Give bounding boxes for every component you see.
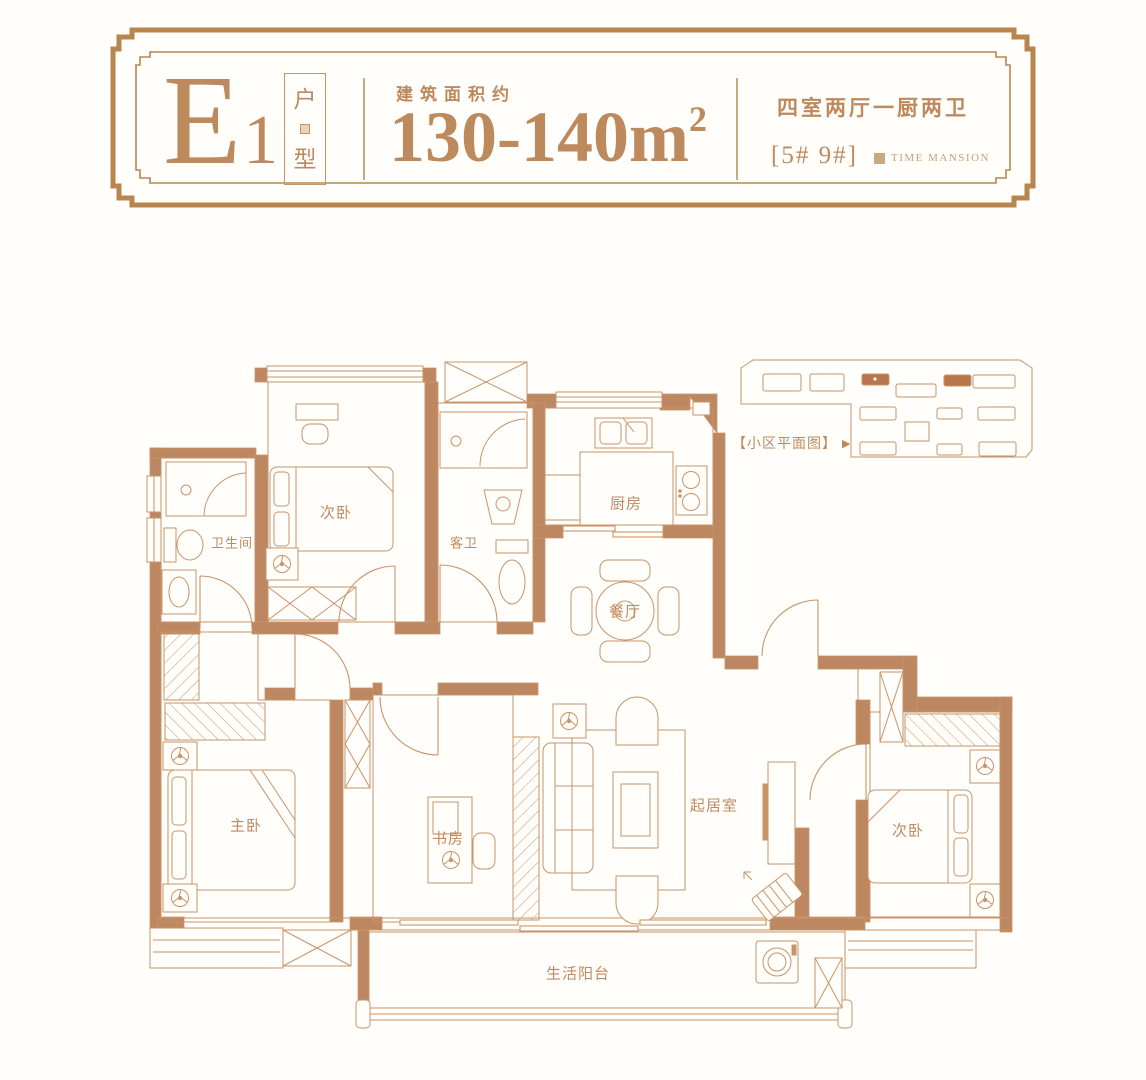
kitchen-sink bbox=[595, 418, 652, 448]
dressing-desk bbox=[296, 404, 338, 444]
room-label-bedroom-2: 次卧 bbox=[320, 502, 352, 523]
entry-bench bbox=[744, 872, 803, 922]
toilet bbox=[496, 540, 528, 604]
room-label-dining: 餐厅 bbox=[609, 601, 641, 622]
brand: TIME MANSION bbox=[874, 152, 990, 164]
building-numbers: [5# 9#] bbox=[771, 142, 858, 170]
floorplan-page: E 1 户 型 建筑面积约 130-140m2 四室两厅一厨两卫 [5# 9#]… bbox=[0, 0, 1146, 1080]
room-label-living: 起居室 bbox=[690, 795, 738, 816]
unit-code-letter: E bbox=[163, 56, 241, 184]
shower bbox=[166, 462, 246, 516]
brand-logo-icon bbox=[874, 153, 885, 164]
room-label-study: 书房 bbox=[432, 828, 464, 849]
kitchen-island bbox=[580, 452, 673, 525]
washing-machine bbox=[756, 941, 798, 983]
pedestal-sink bbox=[484, 490, 522, 524]
rooms-description: 四室两厅一厨两卫 bbox=[777, 92, 969, 122]
area-unit-superscript: 2 bbox=[689, 99, 707, 139]
area-value-number: 130-140m bbox=[389, 97, 689, 177]
unit-type-box: 户 型 bbox=[284, 73, 326, 185]
sink bbox=[162, 570, 196, 614]
room-label-kitchen: 厨房 bbox=[610, 493, 642, 514]
siteplan-caption: 【小区平面图】 ▶ bbox=[732, 433, 850, 453]
room-label-bath-main: 卫生间 bbox=[211, 533, 253, 552]
siteplan-caption-text: 【小区平面图】 bbox=[732, 433, 837, 453]
room-label-bedroom-3: 次卧 bbox=[892, 820, 924, 841]
stove bbox=[676, 466, 707, 515]
brand-name: TIME MANSION bbox=[891, 152, 990, 164]
unit-type-char-1: 户 bbox=[294, 88, 317, 111]
header-divider bbox=[736, 78, 738, 180]
area-value: 130-140m2 bbox=[389, 101, 707, 173]
unit-code-number: 1 bbox=[243, 106, 278, 176]
seal-ornament-icon bbox=[300, 124, 310, 134]
room-label-bath-guest: 客卫 bbox=[450, 533, 478, 552]
unit-code: E 1 bbox=[163, 56, 278, 184]
unit-type-char-2: 型 bbox=[294, 148, 317, 171]
tv-cabinet bbox=[763, 762, 795, 864]
room-label-master: 主卧 bbox=[230, 815, 262, 836]
toilet bbox=[164, 528, 203, 562]
siteplan-arrow-icon: ▶ bbox=[842, 437, 850, 450]
header-divider bbox=[363, 78, 365, 180]
shower bbox=[440, 412, 527, 468]
room-label-balcony: 生活阳台 bbox=[546, 963, 610, 984]
